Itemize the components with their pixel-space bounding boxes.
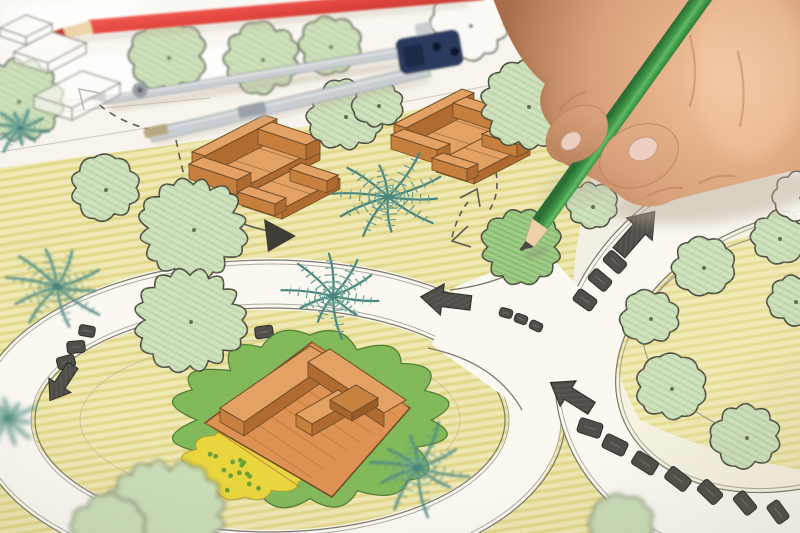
photo-stage	[0, 0, 800, 533]
vignette	[0, 0, 800, 533]
scene-photo	[0, 0, 800, 533]
